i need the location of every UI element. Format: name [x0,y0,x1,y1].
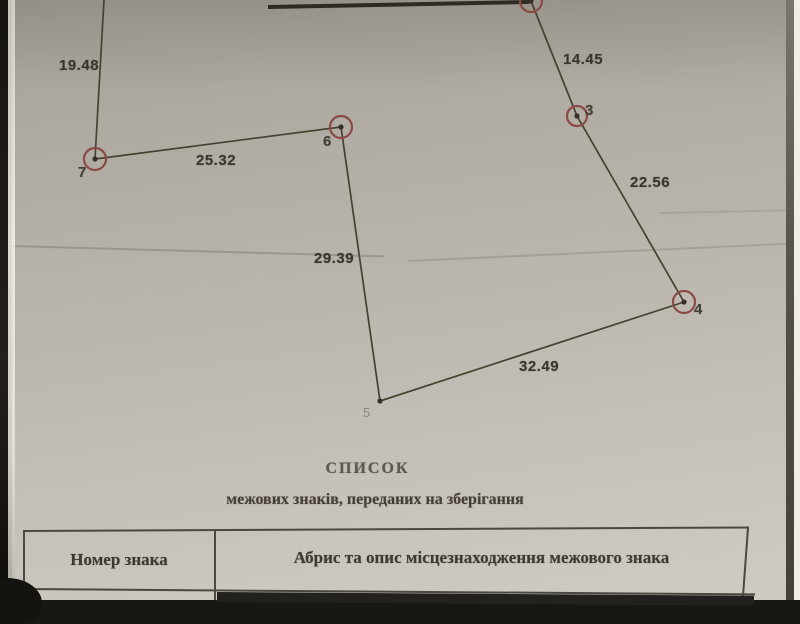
boundary-line [577,116,684,302]
boundary-line [531,1,577,116]
boundary-point-dot [338,124,343,129]
boundary-point-dot [377,398,382,403]
scanned-survey-document: 19.4825.3229.3932.4922.5614.4534567 СПИС… [0,0,800,600]
boundary-point-dot [92,156,97,161]
boundary-line [380,302,684,401]
boundary-point-dot [681,299,686,304]
boundary-point-dot [528,0,533,4]
scan-edge-right-highlight [794,0,800,600]
table-header-marker-number: Номер знака [25,532,213,588]
scan-edge-left-highlight [8,0,15,600]
boundary-line-cut-top [268,2,529,7]
list-title: СПИСОК [270,460,465,478]
boundary-line [95,0,104,159]
list-subtitle: межових знаків, переданих на зберігання [175,491,575,509]
boundary-sketch-drawing [0,0,800,600]
boundary-point-dot [574,113,579,118]
boundary-line [341,127,380,401]
boundary-line [95,127,341,159]
table-header-abris-description: Абрис та опис місцезнаходження межового … [216,530,747,586]
